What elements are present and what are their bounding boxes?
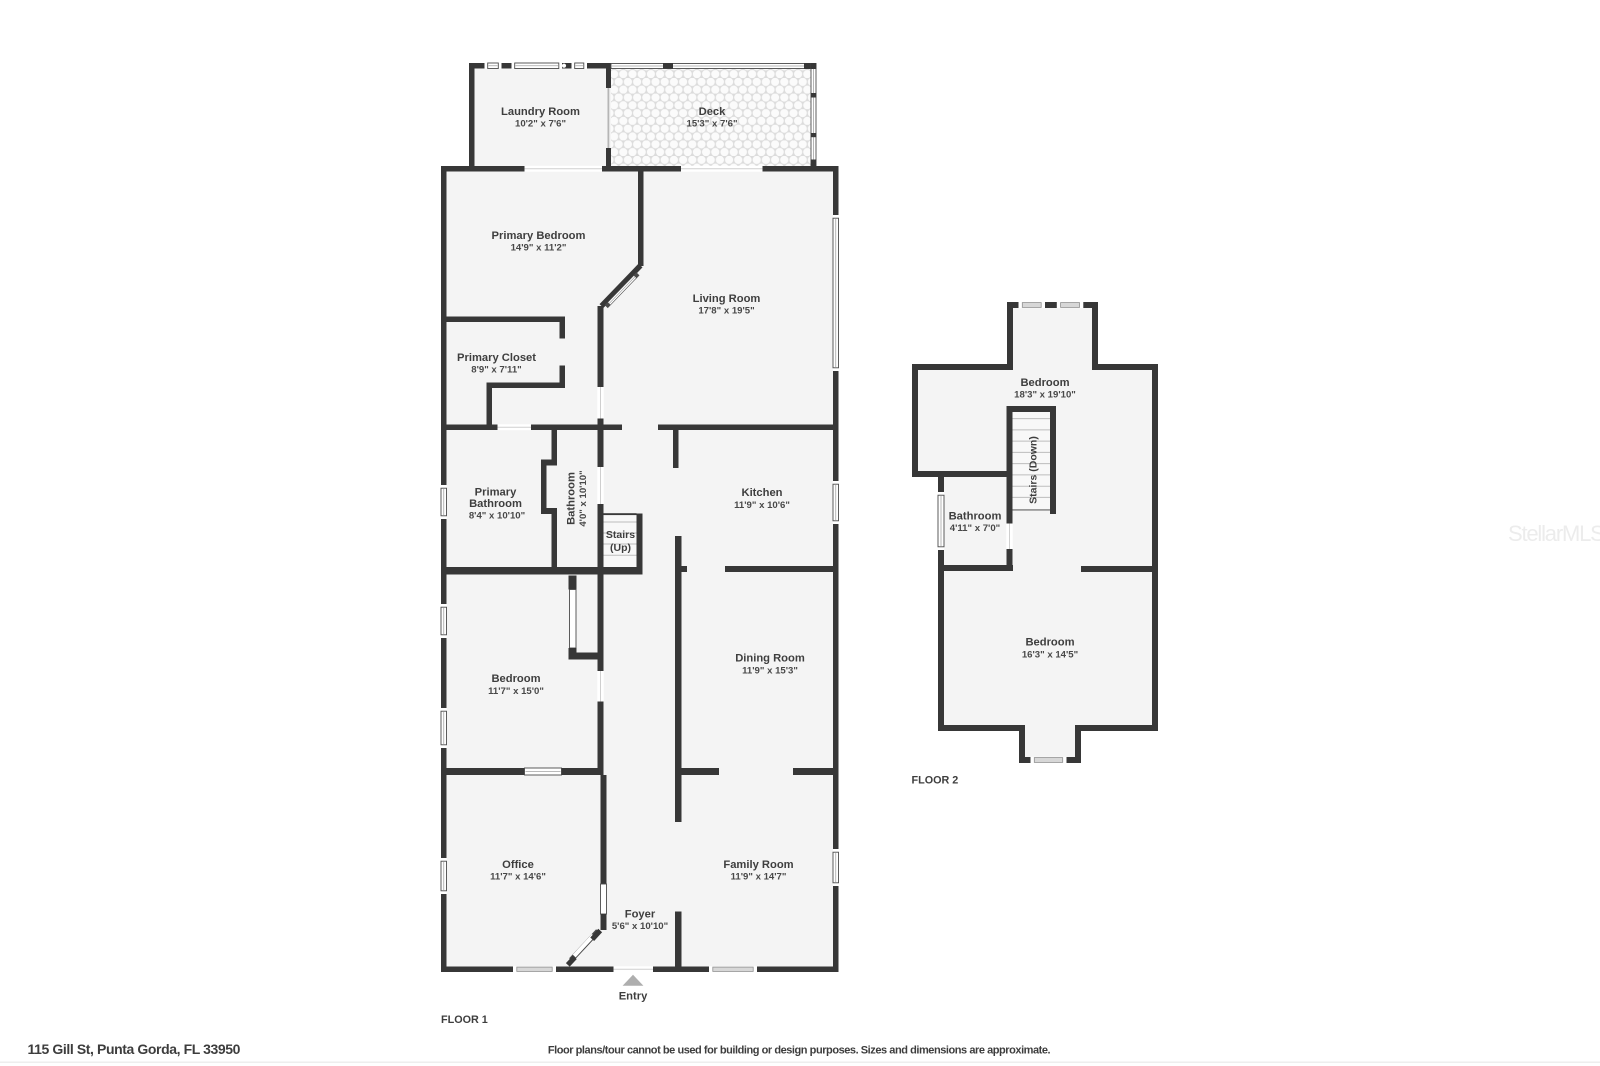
svg-text:5'6" x 10'10": 5'6" x 10'10" [612,921,668,932]
svg-text:4'11" x 7'0": 4'11" x 7'0" [950,523,1000,534]
svg-text:Primary Closet: Primary Closet [457,352,536,364]
svg-text:Laundry Room: Laundry Room [501,106,580,118]
svg-text:Bathroom: Bathroom [566,472,578,525]
svg-text:Bedroom: Bedroom [1025,637,1074,649]
svg-text:Foyer: Foyer [625,909,656,921]
svg-text:FLOOR 1: FLOOR 1 [441,1014,488,1026]
svg-text:Entry: Entry [619,991,648,1003]
svg-text:Bathroom: Bathroom [469,498,522,510]
svg-text:4'0" x 10'10": 4'0" x 10'10" [578,470,589,526]
svg-text:Living Room: Living Room [693,293,761,305]
svg-text:Stairs: Stairs [606,529,635,541]
svg-text:17'8" x 19'5": 17'8" x 19'5" [698,306,754,317]
svg-text:Primary: Primary [475,487,517,499]
svg-text:Bedroom: Bedroom [491,673,540,685]
svg-text:Dining Room: Dining Room [735,653,805,665]
svg-text:15'3" x 7'6": 15'3" x 7'6" [686,119,737,130]
svg-text:Bedroom: Bedroom [1020,377,1069,389]
svg-text:8'4" x 10'10": 8'4" x 10'10" [469,511,525,522]
svg-text:11'7" x 14'6": 11'7" x 14'6" [490,872,546,883]
svg-text:StellarMLS: StellarMLS [1508,521,1600,546]
svg-text:10'2" x 7'6": 10'2" x 7'6" [515,119,566,130]
svg-text:8'9" x 7'11": 8'9" x 7'11" [471,365,521,376]
svg-text:11'9" x 15'3": 11'9" x 15'3" [742,666,798,677]
svg-text:Floor plans/tour cannot be use: Floor plans/tour cannot be used for buil… [548,1045,1051,1057]
svg-text:Deck: Deck [699,106,727,118]
svg-text:FLOOR 2: FLOOR 2 [912,775,959,787]
svg-text:Family Room: Family Room [723,859,793,871]
svg-text:Bathroom: Bathroom [949,511,1002,523]
svg-text:115 Gill St, Punta Gorda, FL 3: 115 Gill St, Punta Gorda, FL 33950 [28,1041,241,1057]
svg-text:18'3" x 19'10": 18'3" x 19'10" [1014,390,1076,401]
svg-text:Primary Bedroom: Primary Bedroom [492,230,586,242]
svg-text:11'9" x 14'7": 11'9" x 14'7" [731,872,787,883]
svg-text:11'7" x 15'0": 11'7" x 15'0" [488,686,544,697]
svg-text:16'3" x 14'5": 16'3" x 14'5" [1022,650,1078,661]
svg-text:(Up): (Up) [610,542,631,554]
svg-text:Kitchen: Kitchen [741,487,782,499]
svg-text:11'9" x 10'6": 11'9" x 10'6" [734,500,790,511]
svg-text:Office: Office [502,859,534,871]
svg-text:Stairs (Down): Stairs (Down) [1028,436,1040,504]
svg-text:14'9" x 11'2": 14'9" x 11'2" [511,243,567,254]
